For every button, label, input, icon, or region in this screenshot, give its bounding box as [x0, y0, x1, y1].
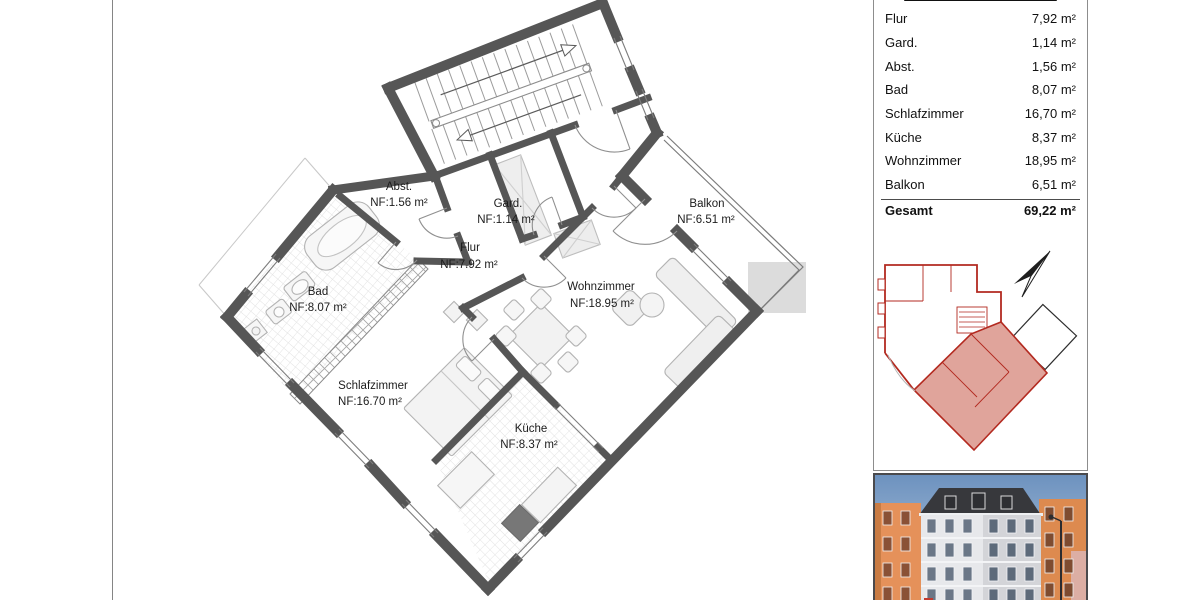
area-table: Flur 7,92 m² Gard. 1,14 m² Abst. 1,56 m²… [874, 7, 1087, 197]
area-row-value: 1,14 m² [1032, 35, 1076, 50]
area-row-label: Gard. [885, 35, 918, 50]
area-row-label: Bad [885, 82, 908, 97]
area-row-label: Wohnzimmer [885, 153, 961, 168]
area-row: Küche 8,37 m² [874, 125, 1087, 149]
room-area-schlafzimmer: NF:16.70 m² [338, 396, 402, 408]
area-row-value: 7,92 m² [1032, 11, 1076, 26]
room-area-balkon: NF:6.51 m² [677, 214, 735, 226]
area-row: Gard. 1,14 m² [874, 31, 1087, 55]
area-row-value: 6,51 m² [1032, 177, 1076, 192]
room-label-gard: Gard. [494, 198, 523, 210]
floorplan-sheet: Abst. NF:1.56 m² Gard. NF:1.14 m² Flur N… [0, 0, 1200, 600]
side-table [640, 293, 664, 317]
room-label-flur: Flur [460, 242, 480, 254]
area-row: Balkon 6,51 m² [874, 173, 1087, 197]
room-label-wohnzimmer: Wohnzimmer [567, 281, 635, 293]
north-arrow-icon [1014, 251, 1050, 297]
room-area-wohnzimmer: NF:18.95 m² [570, 298, 634, 310]
area-row-value: 8,37 m² [1032, 130, 1076, 145]
area-table-panel: 2. OBERGESCHOSS Flur 7,92 m² Gard. 1,14 … [873, 0, 1088, 471]
total-label: Gesamt [885, 203, 933, 218]
building-photo-drawing [875, 475, 1086, 600]
area-row-value: 1,56 m² [1032, 59, 1076, 74]
area-row: Bad 8,07 m² [874, 78, 1087, 102]
room-area-gard: NF:1.14 m² [477, 214, 535, 226]
total-value: 69,22 m² [1024, 203, 1076, 218]
room-label-abst: Abst. [386, 181, 412, 193]
area-row-label: Schlafzimmer [885, 106, 964, 121]
left-building [875, 503, 921, 600]
room-area-kueche: NF:8.37 m² [500, 439, 558, 451]
floor-plan-drawing: Abst. NF:1.56 m² Gard. NF:1.14 m² Flur N… [0, 0, 870, 600]
area-row-label: Abst. [885, 59, 915, 74]
area-row: Wohnzimmer 18,95 m² [874, 149, 1087, 173]
room-label-bad: Bad [308, 286, 328, 298]
room-area-abst: NF:1.56 m² [370, 197, 428, 209]
area-row: Flur 7,92 m² [874, 7, 1087, 31]
area-row-label: Balkon [885, 177, 925, 192]
area-row-label: Flur [885, 11, 907, 26]
room-label-balkon: Balkon [689, 198, 724, 210]
area-row-value: 16,70 m² [1025, 106, 1076, 121]
area-row-value: 18,95 m² [1025, 153, 1076, 168]
floor-title: 2. OBERGESCHOSS [874, 0, 1087, 3]
area-row: Schlafzimmer 16,70 m² [874, 102, 1087, 126]
stair-railing [431, 63, 592, 128]
room-area-flur: NF:7.92 m² [440, 259, 498, 271]
room-label-schlafzimmer: Schlafzimmer [338, 380, 408, 392]
room-label-kueche: Küche [515, 423, 548, 435]
area-row-label: Küche [885, 130, 922, 145]
total-row: Gesamt 69,22 m² [874, 200, 1087, 222]
building-photo [873, 473, 1088, 600]
site-plan-minimap [875, 239, 1087, 469]
area-row-value: 8,07 m² [1032, 82, 1076, 97]
area-row: Abst. 1,56 m² [874, 54, 1087, 78]
room-area-bad: NF:8.07 m² [289, 302, 347, 314]
